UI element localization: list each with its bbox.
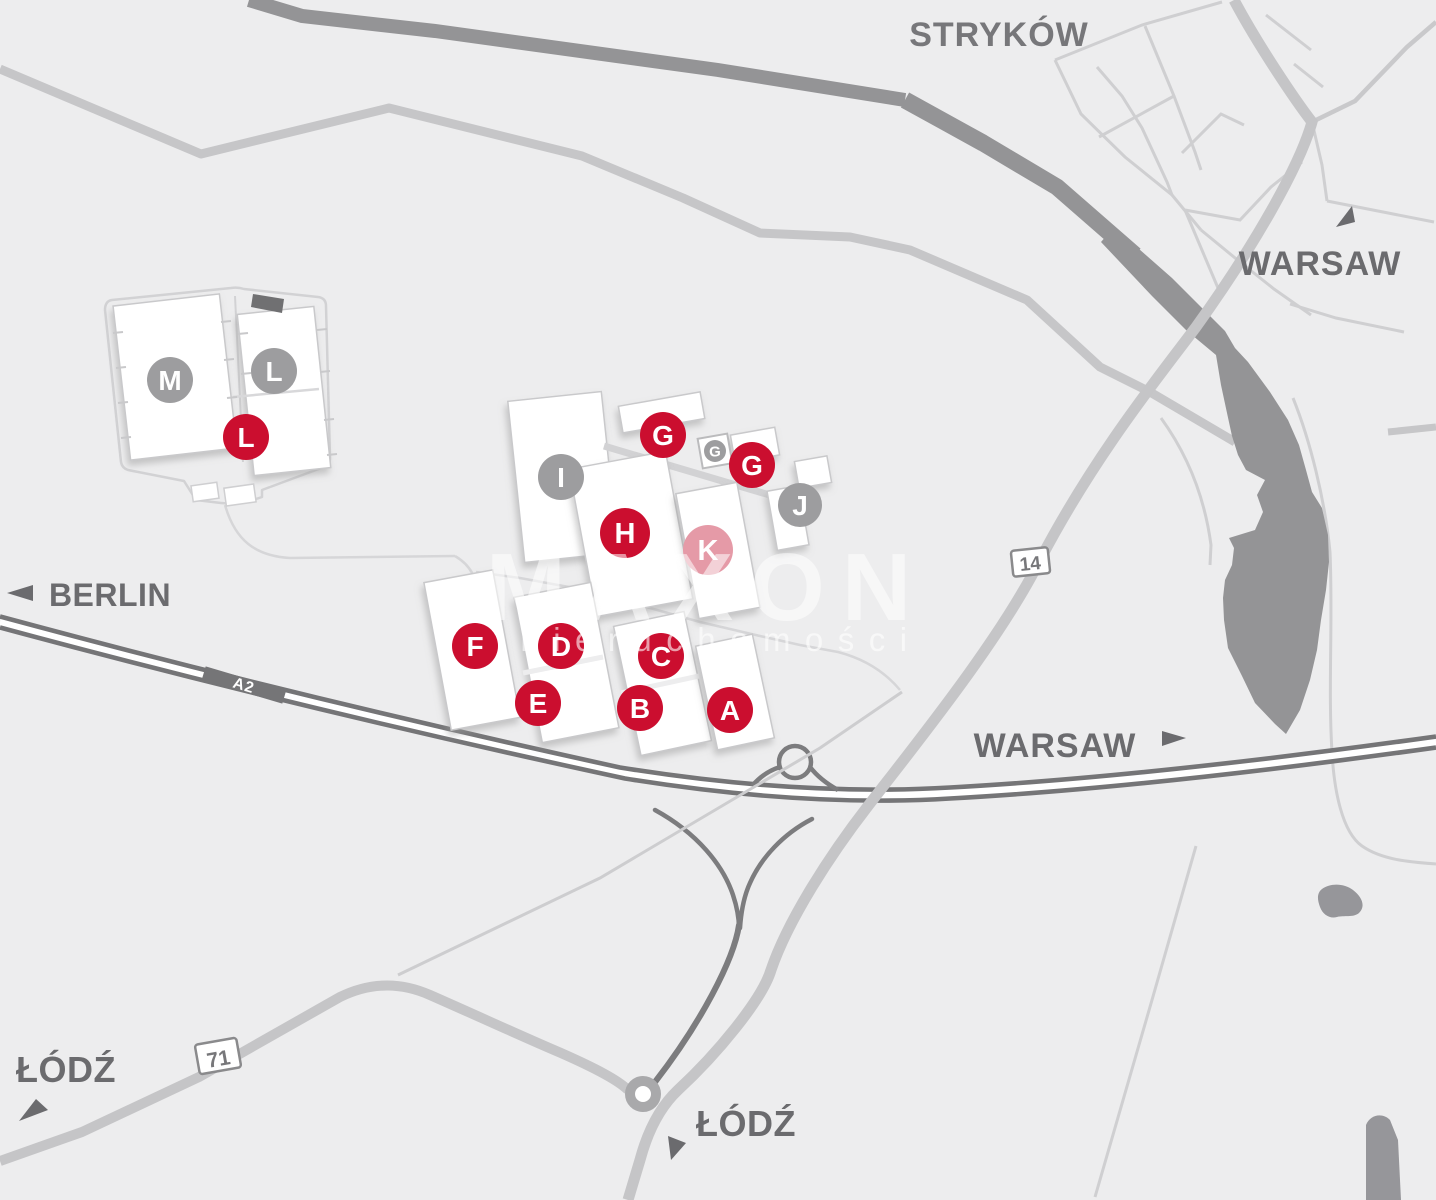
svg-text:WARSAW: WARSAW <box>974 727 1137 765</box>
svg-text:B: B <box>630 693 650 724</box>
svg-text:M: M <box>158 365 181 396</box>
svg-text:14: 14 <box>1019 553 1043 576</box>
svg-text:I: I <box>557 462 565 493</box>
svg-text:L: L <box>237 422 254 453</box>
svg-text:A: A <box>720 695 740 726</box>
svg-text:WARSAW: WARSAW <box>1239 245 1402 283</box>
svg-text:BERLIN: BERLIN <box>49 577 171 613</box>
svg-text:ŁÓDŹ: ŁÓDŹ <box>16 1048 116 1090</box>
svg-text:J: J <box>792 490 808 521</box>
svg-text:G: G <box>709 444 721 461</box>
svg-text:L: L <box>265 356 282 387</box>
svg-text:71: 71 <box>205 1046 232 1073</box>
svg-text:nieruchomości: nieruchomości <box>520 621 921 658</box>
svg-text:G: G <box>652 420 674 451</box>
svg-text:STRYKÓW: STRYKÓW <box>909 16 1089 54</box>
svg-text:E: E <box>529 688 548 719</box>
svg-text:G: G <box>741 450 763 481</box>
svg-text:ŁÓDŹ: ŁÓDŹ <box>696 1102 796 1144</box>
svg-text:F: F <box>466 631 483 662</box>
